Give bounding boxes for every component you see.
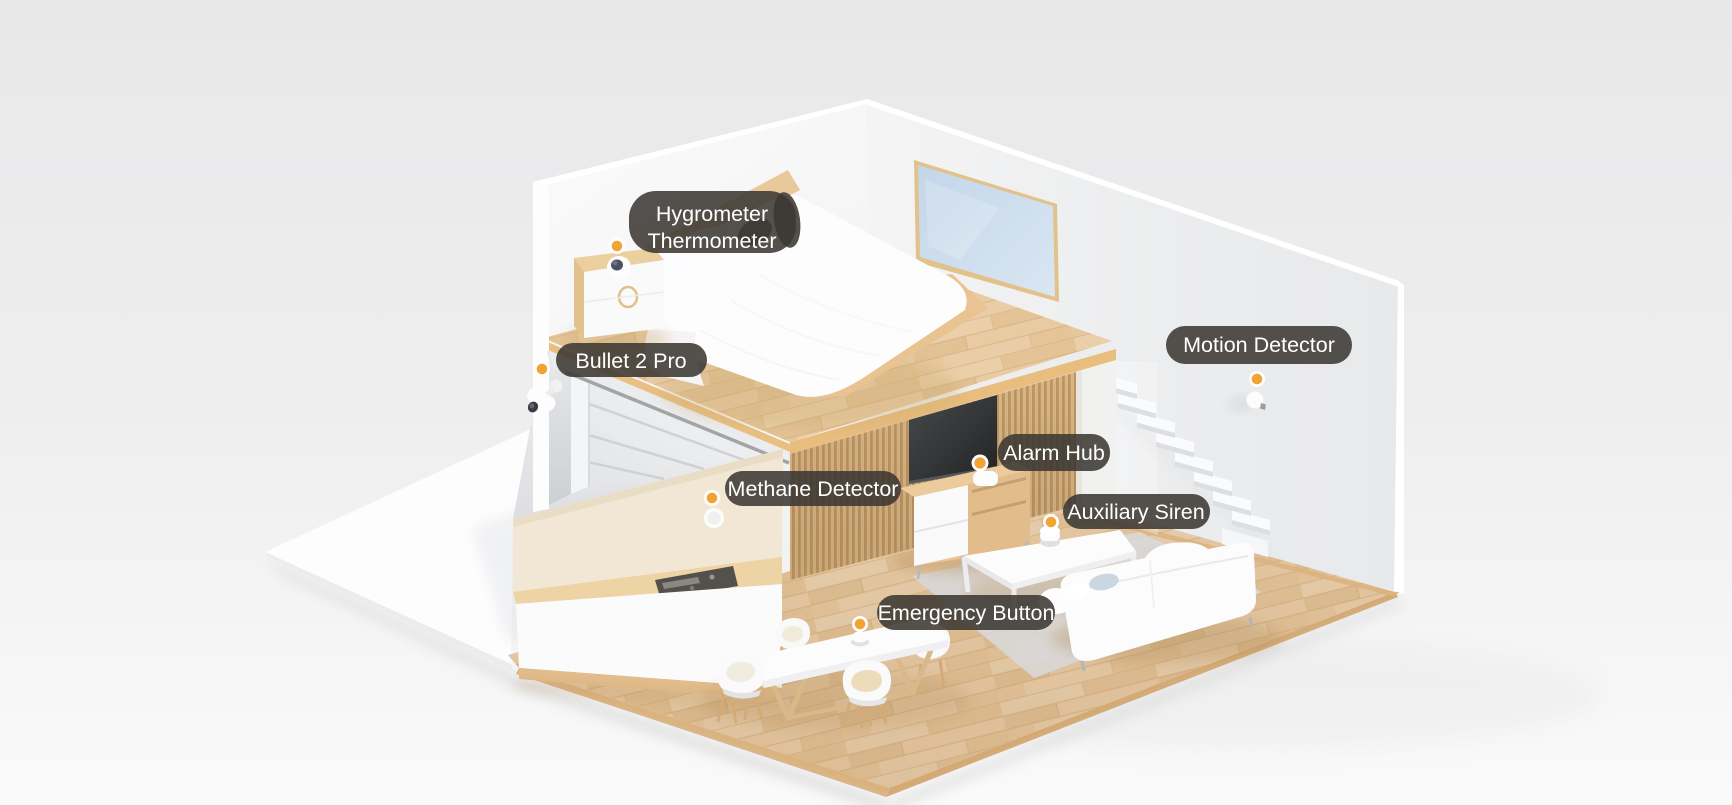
svg-text:Motion Detector: Motion Detector: [1183, 333, 1335, 357]
svg-text:Thermometer: Thermometer: [647, 229, 776, 253]
svg-text:Emergency Button: Emergency Button: [878, 601, 1055, 625]
svg-text:Methane Detector: Methane Detector: [728, 477, 899, 501]
svg-text:Auxiliary Siren: Auxiliary Siren: [1067, 500, 1204, 524]
svg-text:Alarm Hub: Alarm Hub: [1003, 441, 1105, 465]
svg-text:Hygrometer: Hygrometer: [656, 202, 768, 226]
svg-text:Bullet 2 Pro: Bullet 2 Pro: [575, 349, 686, 373]
